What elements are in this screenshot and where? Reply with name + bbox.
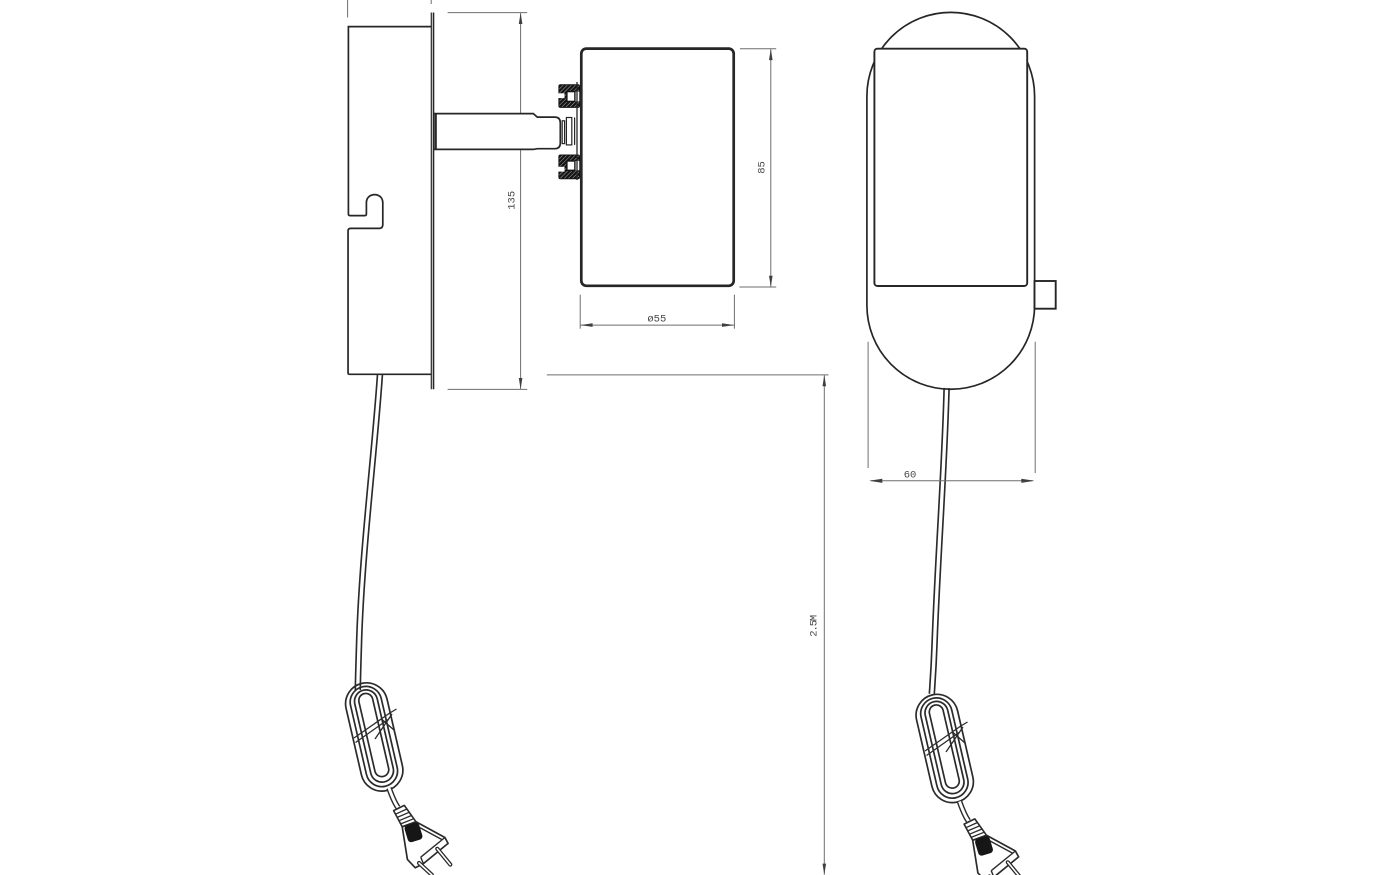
- svg-text:85: 85: [756, 161, 768, 174]
- svg-text:ø55: ø55: [647, 314, 666, 326]
- svg-text:135: 135: [506, 191, 518, 210]
- svg-text:60: 60: [904, 469, 917, 481]
- svg-text:2.5M: 2.5M: [809, 615, 821, 637]
